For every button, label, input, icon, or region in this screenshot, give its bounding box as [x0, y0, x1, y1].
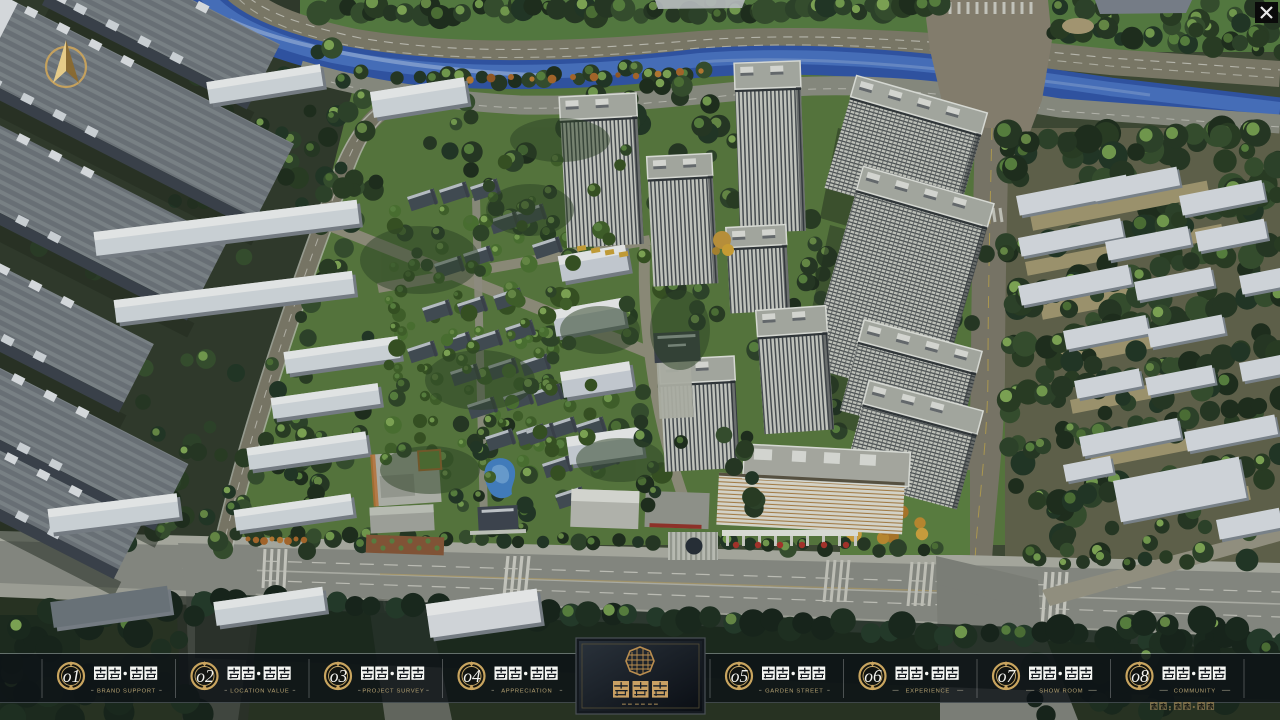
- svg-text:o3: o3: [330, 666, 348, 686]
- svg-text:o5: o5: [731, 666, 749, 686]
- svg-text:o1: o1: [63, 666, 81, 686]
- svg-text:APPRECIATION: APPRECIATION: [501, 688, 552, 694]
- svg-text:o4: o4: [463, 666, 481, 686]
- svg-text:o6: o6: [864, 666, 882, 686]
- svg-text:BRAND SUPPORT: BRAND SUPPORT: [97, 688, 156, 694]
- svg-text:SHOW ROOM: SHOW ROOM: [1039, 688, 1083, 694]
- svg-text:EXPERIENCE: EXPERIENCE: [906, 688, 950, 694]
- svg-text:o2: o2: [196, 666, 214, 686]
- svg-text:LOCATION VALUE: LOCATION VALUE: [230, 688, 289, 694]
- svg-text:GARDEN STREET: GARDEN STREET: [765, 688, 823, 694]
- svg-text:COMMUNITY: COMMUNITY: [1174, 688, 1216, 694]
- svg-text:PROJECT SURVEY: PROJECT SURVEY: [362, 688, 424, 694]
- svg-text:o8: o8: [1131, 666, 1149, 686]
- svg-text:o7: o7: [998, 666, 1017, 686]
